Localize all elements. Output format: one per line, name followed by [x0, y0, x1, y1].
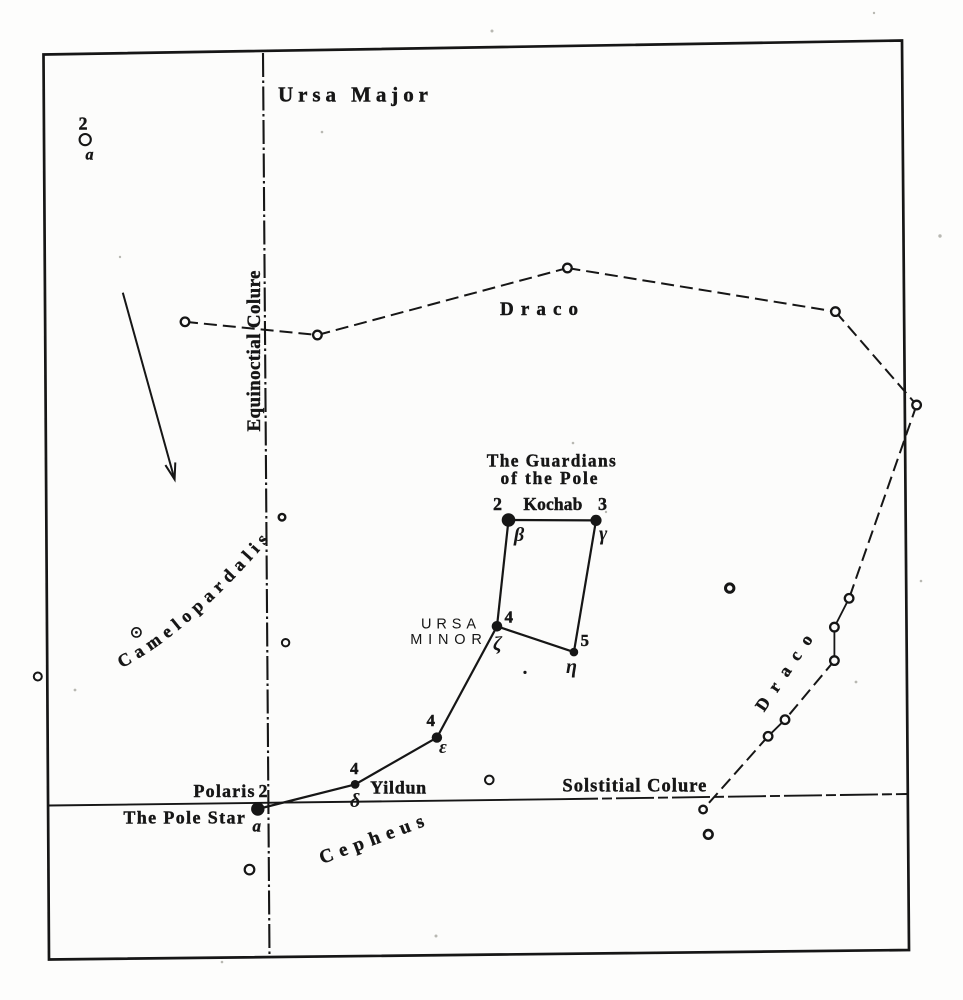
svg-text:4: 4: [427, 711, 436, 730]
svg-text:ε: ε: [439, 737, 447, 758]
svg-text:Solstitial Colure: Solstitial Colure: [562, 777, 706, 797]
svg-text:4: 4: [350, 759, 359, 778]
svg-text:5: 5: [581, 631, 590, 650]
svg-text:γ: γ: [599, 523, 608, 545]
svg-text:2: 2: [259, 781, 268, 801]
svg-text:a: a: [253, 817, 262, 836]
svg-text:δ: δ: [350, 790, 360, 812]
svg-text:a: a: [86, 147, 94, 164]
svg-text:Polaris: Polaris: [194, 781, 255, 801]
svg-text:Kochab: Kochab: [523, 494, 582, 514]
svg-text:Equinoctial Colure: Equinoctial Colure: [244, 271, 265, 432]
svg-text:4: 4: [505, 608, 514, 627]
svg-text:MINOR: MINOR: [410, 632, 482, 648]
svg-text:of the Pole: of the Pole: [501, 468, 598, 488]
svg-text:The Pole Star: The Pole Star: [123, 808, 244, 828]
svg-text:2: 2: [79, 114, 88, 134]
svg-text:2: 2: [493, 494, 502, 514]
svg-text:ζ: ζ: [493, 633, 503, 655]
svg-text:Yildun: Yildun: [370, 778, 426, 798]
svg-text:Ursa Major: Ursa Major: [278, 83, 428, 107]
svg-text:β: β: [513, 524, 525, 546]
svg-text:η: η: [566, 656, 577, 678]
